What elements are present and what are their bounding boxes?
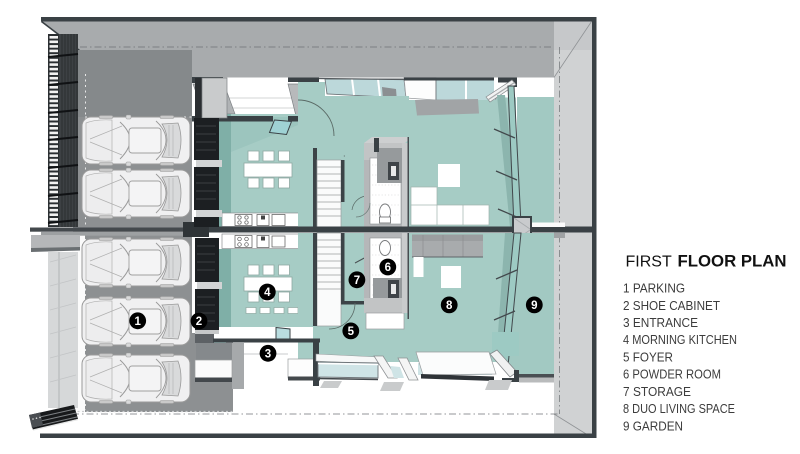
- svg-text:FIRST: FIRST: [626, 254, 672, 271]
- svg-text:1: 1: [134, 316, 141, 328]
- svg-text:4 MORNING KITCHEN: 4 MORNING KITCHEN: [623, 333, 737, 347]
- svg-text:4: 4: [264, 287, 271, 299]
- svg-text:9 GARDEN: 9 GARDEN: [623, 419, 683, 433]
- svg-text:3 ENTRANCE: 3 ENTRANCE: [623, 316, 698, 330]
- svg-text:5 FOYER: 5 FOYER: [623, 350, 673, 364]
- svg-text:FLOOR PLAN: FLOOR PLAN: [678, 253, 787, 271]
- svg-text:7: 7: [354, 275, 360, 287]
- svg-text:9: 9: [531, 300, 537, 312]
- svg-text:8: 8: [446, 300, 453, 312]
- svg-text:3: 3: [265, 349, 271, 361]
- svg-text:6 POWDER ROOM: 6 POWDER ROOM: [623, 368, 721, 382]
- svg-text:1 PARKING: 1 PARKING: [623, 282, 685, 296]
- svg-text:6: 6: [385, 262, 391, 274]
- svg-text:5: 5: [348, 326, 355, 338]
- svg-text:8 DUO LIVING SPACE: 8 DUO LIVING SPACE: [623, 402, 735, 416]
- svg-text:2: 2: [196, 316, 202, 328]
- svg-text:7 STORAGE: 7 STORAGE: [623, 385, 691, 399]
- svg-text:2 SHOE CABINET: 2 SHOE CABINET: [623, 299, 720, 313]
